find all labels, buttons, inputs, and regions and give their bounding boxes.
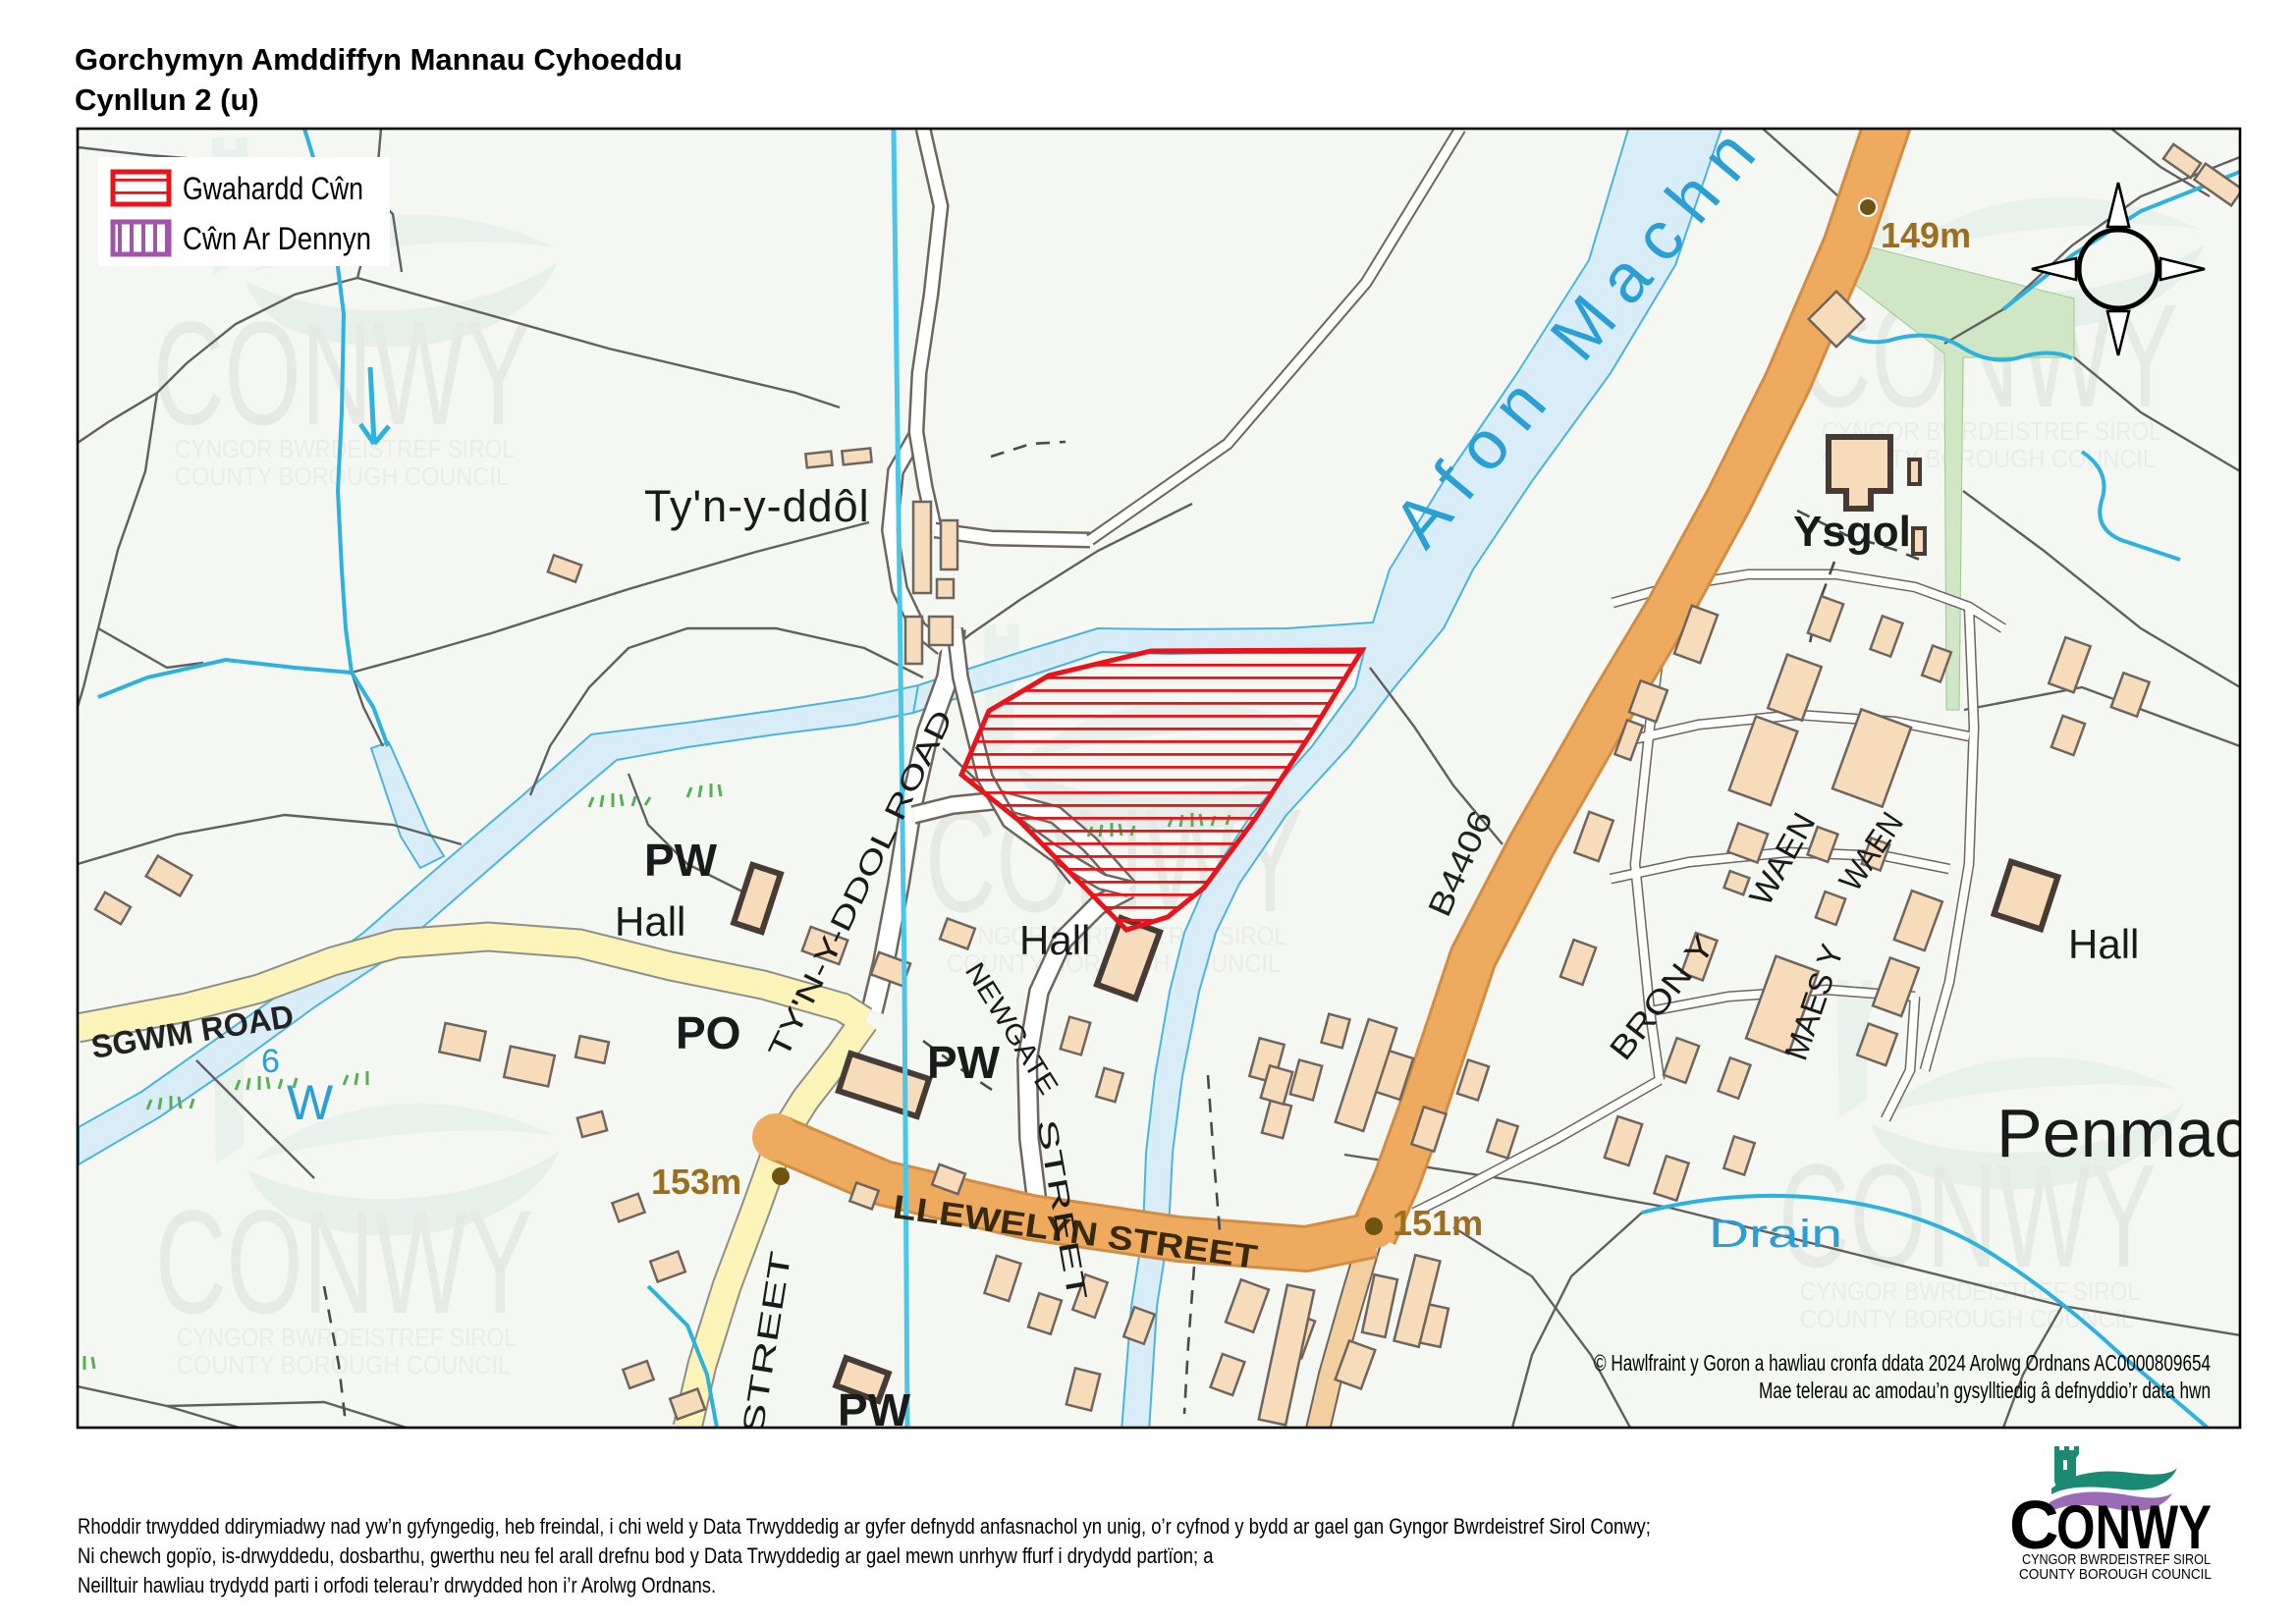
svg-text:153m: 153m (651, 1162, 741, 1202)
svg-text:Hall: Hall (1019, 917, 1090, 963)
svg-text:151m: 151m (1393, 1203, 1483, 1243)
svg-text:COUNTY BOROUGH COUNCIL: COUNTY BOROUGH COUNCIL (2019, 1567, 2212, 1583)
svg-text:Ty'n-y-ddôl: Ty'n-y-ddôl (644, 481, 870, 531)
svg-text:149m: 149m (1881, 215, 1971, 255)
svg-text:Ysgol: Ysgol (1793, 508, 1911, 556)
svg-text:Gwahardd Cŵn: Gwahardd Cŵn (183, 171, 363, 206)
svg-text:Penmach: Penmach (1996, 1095, 2287, 1171)
svg-text:PW: PW (644, 835, 718, 886)
svg-text:6: 6 (261, 1043, 280, 1080)
svg-text:CYNGOR BWRDEISTREF SIROL: CYNGOR BWRDEISTREF SIROL (2022, 1552, 2211, 1568)
svg-text:Cŵn Ar Dennyn: Cŵn Ar Dennyn (183, 221, 371, 256)
svg-text:PO: PO (676, 1007, 740, 1058)
svg-text:Drain: Drain (1709, 1213, 1842, 1256)
svg-text:PW: PW (927, 1037, 1001, 1088)
svg-text:Hall: Hall (2068, 921, 2139, 967)
svg-text:W: W (287, 1075, 334, 1130)
svg-text:© Hawlfraint y Goron a hawliau: © Hawlfraint y Goron a hawliau cronfa dd… (1594, 1350, 2211, 1376)
svg-text:Mae telerau ac amodau’n gysyll: Mae telerau ac amodau’n gysylltiedig â d… (1759, 1378, 2211, 1403)
svg-text:Hall: Hall (615, 898, 685, 945)
